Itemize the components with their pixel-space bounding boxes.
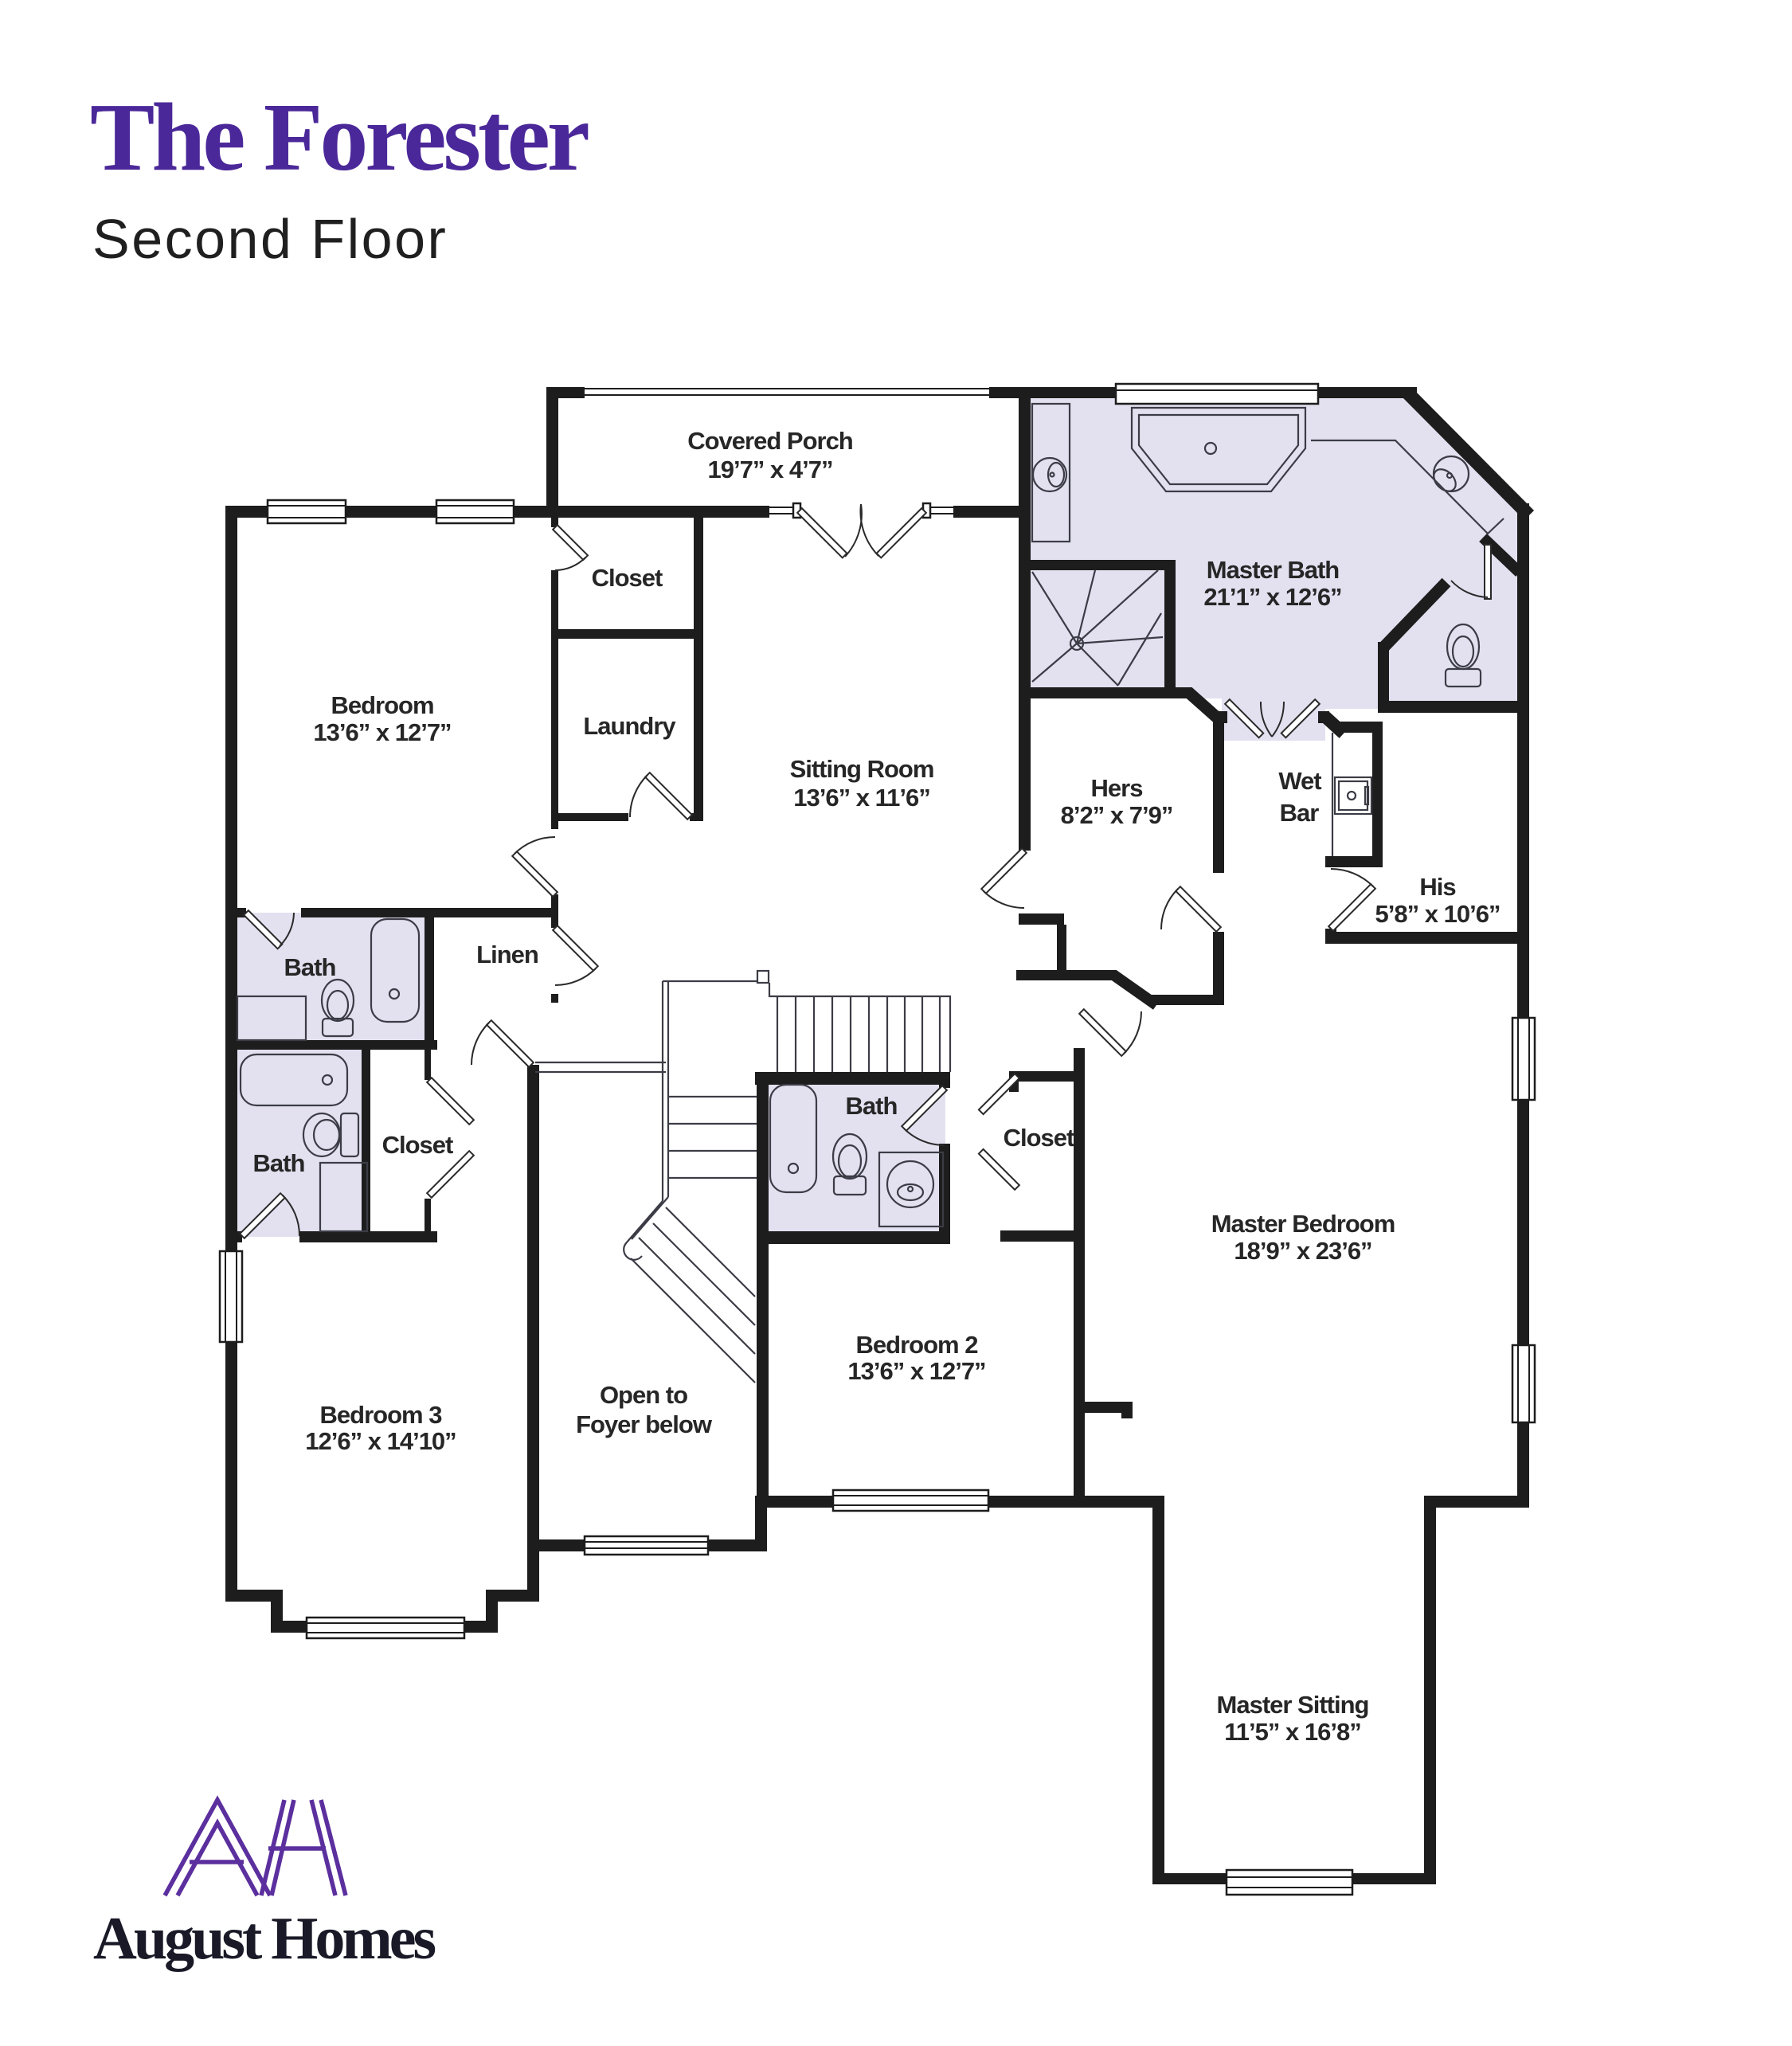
svg-text:18’9” x 23’6”: 18’9” x 23’6” [1234,1237,1371,1265]
svg-text:Bath: Bath [253,1149,305,1177]
svg-text:The Forester: The Forester [90,84,589,191]
svg-text:Covered Porch: Covered Porch [687,427,853,455]
svg-text:Bath: Bath [846,1092,898,1120]
svg-text:Master Bedroom: Master Bedroom [1211,1210,1395,1238]
svg-text:Bath: Bath [284,953,336,981]
svg-text:21’1” x 12’6”: 21’1” x 12’6” [1203,583,1341,611]
svg-text:His: His [1419,873,1455,901]
svg-text:12’6” x 14’10”: 12’6” x 14’10” [305,1427,456,1455]
svg-text:Foyer below: Foyer below [576,1410,713,1438]
svg-text:Sitting Room: Sitting Room [790,755,934,783]
svg-text:19’7” x 4’7”: 19’7” x 4’7” [708,456,833,483]
svg-text:11’5” x 16’8”: 11’5” x 16’8” [1224,1718,1360,1746]
svg-text:Closet: Closet [382,1131,453,1159]
svg-text:Bedroom 2: Bedroom 2 [856,1331,978,1359]
svg-text:8’2” x 7’9”: 8’2” x 7’9” [1061,801,1173,829]
svg-text:Second Floor: Second Floor [92,208,448,270]
svg-text:5’8” x 10’6”: 5’8” x 10’6” [1375,900,1501,928]
svg-text:Master Sitting: Master Sitting [1217,1691,1369,1719]
svg-text:Closet: Closet [592,564,663,592]
svg-text:Bar: Bar [1280,799,1320,827]
svg-text:Master Bath: Master Bath [1207,556,1339,584]
svg-text:Wet: Wet [1278,767,1321,795]
svg-text:Laundry: Laundry [583,712,676,740]
svg-text:Hers: Hers [1091,774,1143,802]
svg-text:Bedroom: Bedroom [331,691,433,719]
svg-text:Closet: Closet [1004,1124,1074,1152]
svg-text:13’6” x 11’6”: 13’6” x 11’6” [793,784,929,812]
svg-text:Linen: Linen [476,941,538,968]
svg-text:Bedroom 3: Bedroom 3 [320,1401,443,1429]
svg-text:13’6” x 12’7”: 13’6” x 12’7” [847,1357,985,1385]
svg-text:13’6” x 12’7”: 13’6” x 12’7” [313,718,451,746]
svg-text:Open to: Open to [600,1381,687,1409]
svg-text:August Homes: August Homes [93,1905,435,1972]
